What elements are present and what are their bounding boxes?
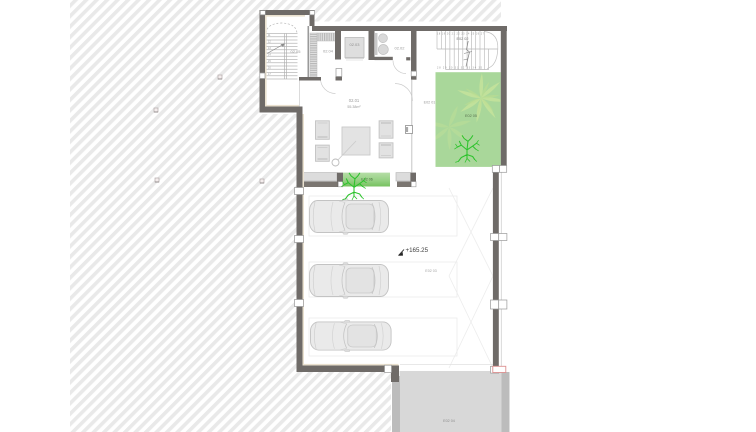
svg-text:28 29 30 31 32 33 34 35: 28 29 30 31 32 33 34 35 [437, 67, 483, 70]
svg-text:E02 03: E02 03 [425, 269, 436, 273]
svg-text:E02 01: E02 01 [424, 101, 436, 105]
svg-text:02.01: 02.01 [349, 98, 360, 103]
svg-text:55.38m²: 55.38m² [347, 105, 361, 109]
svg-text:E02 04: E02 04 [443, 419, 455, 423]
svg-text:+165.25: +165.25 [406, 247, 429, 254]
svg-text:02.05: 02.05 [290, 49, 301, 54]
svg-text:E02 05: E02 05 [465, 114, 477, 118]
svg-text:18 19 20 21 22 23 24 25 26 27: 18 19 20 21 22 23 24 25 26 27 [437, 33, 485, 36]
svg-text:02.02: 02.02 [394, 46, 405, 51]
svg-text:E02 02: E02 02 [456, 37, 468, 41]
svg-text:02.03: 02.03 [349, 42, 360, 47]
svg-text:02.04: 02.04 [323, 49, 334, 54]
